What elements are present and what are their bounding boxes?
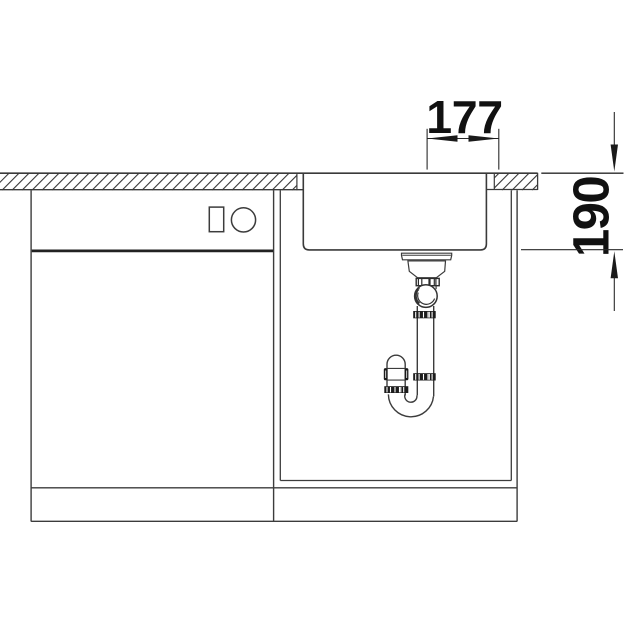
svg-text:190: 190 [563, 177, 620, 258]
svg-text:177: 177 [426, 91, 502, 143]
